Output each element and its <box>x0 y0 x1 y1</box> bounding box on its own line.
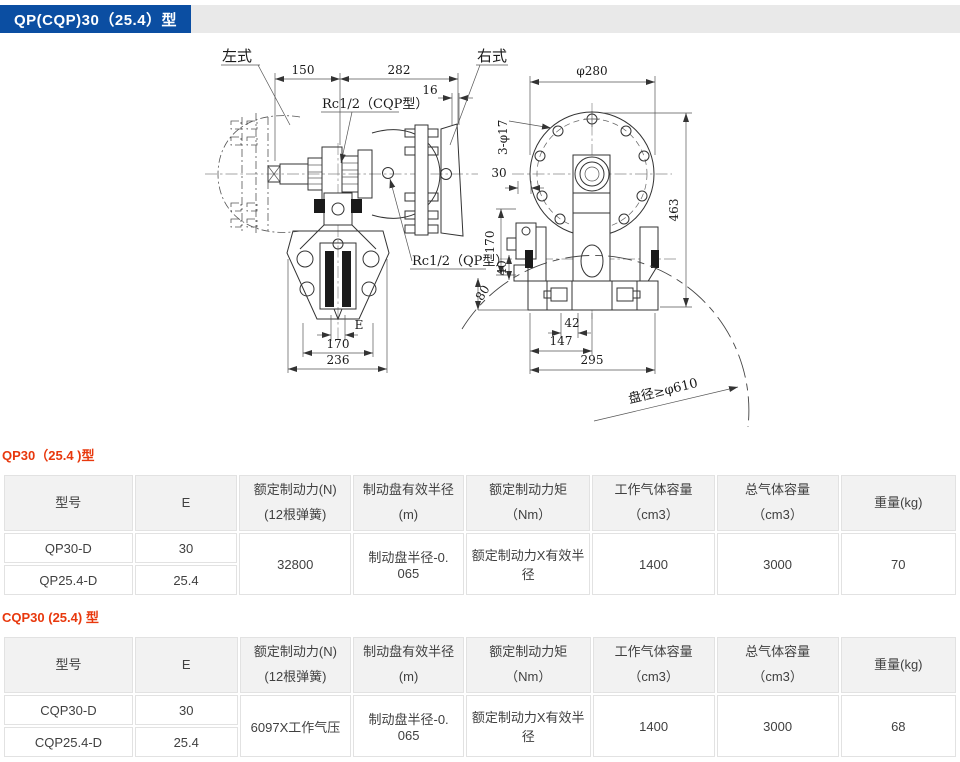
label-left-type: 左式 <box>222 47 252 65</box>
dim-dia280: φ280 <box>576 64 607 78</box>
product-spec-page: { "header": { "title": "QP(CQP)30（25.4）型… <box>0 5 960 762</box>
cell-torque: 额定制动力X有效半径 <box>466 695 591 757</box>
dim-150: 150 <box>292 63 315 77</box>
col-work-volume: 工作气体容量（cm3） <box>592 475 714 531</box>
drawing-area: 150 282 16 Rc1/2（CQP型） 左式 右式 Rc1/2（QP型） … <box>0 39 960 437</box>
table-row: CQP30-D 30 6097X工作气压 制动盘半径-0. 065 额定制动力X… <box>4 695 956 725</box>
col-e: E <box>135 475 238 531</box>
label-rc-cqp: Rc1/2（CQP型） <box>322 97 428 112</box>
dim-e: E <box>355 318 364 332</box>
col-model: 型号 <box>4 475 133 531</box>
dim-v170: 170 <box>483 231 497 254</box>
table-header-row: 型号 E 额定制动力(N) (12根弹簧) 制动盘有效半径(m) 额定制动力矩（… <box>4 475 956 531</box>
cell-weight: 70 <box>841 533 956 595</box>
dim-42: 42 <box>564 316 579 330</box>
dim-80: 80 <box>473 283 493 303</box>
label-disc-diameter: 盘径≥φ610 <box>627 375 700 407</box>
cell-total-volume: 3000 <box>717 695 839 757</box>
cell-e: 30 <box>135 533 238 563</box>
technical-drawing: 150 282 16 Rc1/2（CQP型） 左式 右式 Rc1/2（QP型） … <box>0 39 960 437</box>
cell-torque: 额定制动力X有效半径 <box>466 533 591 595</box>
col-total-volume: 总气体容量（cm3） <box>717 475 839 531</box>
col-disc-radius: 制动盘有效半径(m) <box>353 637 464 693</box>
cell-model: CQP30-D <box>4 695 133 725</box>
dim-463: 463 <box>667 199 681 222</box>
cell-model: QP25.4-D <box>4 565 133 595</box>
col-weight: 重量(kg) <box>841 637 956 693</box>
dim-295: 295 <box>581 353 604 367</box>
cell-disc-radius: 制动盘半径-0. 065 <box>353 533 464 595</box>
col-disc-radius: 制动盘有效半径(m) <box>353 475 464 531</box>
table-row: QP30-D 30 32800 制动盘半径-0. 065 额定制动力X有效半径 … <box>4 533 956 563</box>
cell-rated-force: 6097X工作气压 <box>240 695 352 757</box>
col-work-volume: 工作气体容量（cm3） <box>593 637 715 693</box>
section-label-cqp30: CQP30 (25.4) 型 <box>2 607 960 626</box>
col-weight: 重量(kg) <box>841 475 956 531</box>
pad-mark-left <box>525 250 533 268</box>
brake-pad-left <box>325 251 334 307</box>
dim-40: 40 <box>495 260 509 275</box>
col-total-volume: 总气体容量（cm3） <box>717 637 839 693</box>
cell-model: QP30-D <box>4 533 133 563</box>
cell-work-volume: 1400 <box>592 533 714 595</box>
dim-147: 147 <box>550 334 573 348</box>
cell-work-volume: 1400 <box>593 695 715 757</box>
side-view-body <box>268 124 463 236</box>
qp30-spec-table: 型号 E 额定制动力(N) (12根弹簧) 制动盘有效半径(m) 额定制动力矩（… <box>2 473 958 597</box>
col-rated-force: 额定制动力(N) (12根弹簧) <box>240 637 352 693</box>
col-torque: 额定制动力矩（Nm） <box>466 637 591 693</box>
label-rc-qp: Rc1/2（QP型） <box>412 254 508 269</box>
cell-weight: 68 <box>841 695 956 757</box>
section-label-qp30: QP30（25.4 )型 <box>2 445 960 464</box>
dim-30: 30 <box>491 166 506 180</box>
cell-e: 25.4 <box>135 565 238 595</box>
col-rated-force: 额定制动力(N) (12根弹簧) <box>239 475 351 531</box>
cell-rated-force: 32800 <box>239 533 351 595</box>
page-title: QP(CQP)30（25.4）型 <box>0 5 191 33</box>
dim-282: 282 <box>388 63 411 77</box>
cell-e: 25.4 <box>135 727 238 757</box>
dim-170: 170 <box>327 337 350 351</box>
cqp30-spec-table: 型号 E 额定制动力(N) (12根弹簧) 制动盘有效半径(m) 额定制动力矩（… <box>2 635 958 759</box>
cell-disc-radius: 制动盘半径-0. 065 <box>353 695 464 757</box>
dim-3-phi17: 3-φ17 <box>496 120 510 155</box>
col-model: 型号 <box>4 637 133 693</box>
dim-16: 16 <box>422 83 437 97</box>
cell-total-volume: 3000 <box>717 533 839 595</box>
pad-mark-right <box>651 250 659 268</box>
page-header-strip: QP(CQP)30（25.4）型 <box>0 5 960 33</box>
dim-236: 236 <box>327 353 350 367</box>
table-header-row: 型号 E 额定制动力(N) (12根弹簧) 制动盘有效半径(m) 额定制动力矩（… <box>4 637 956 693</box>
col-e: E <box>135 637 238 693</box>
label-right-type: 右式 <box>477 47 507 65</box>
cell-model: CQP25.4-D <box>4 727 133 757</box>
col-torque: 额定制动力矩（Nm） <box>466 475 591 531</box>
cell-e: 30 <box>135 695 238 725</box>
brake-pad-right <box>342 251 351 307</box>
